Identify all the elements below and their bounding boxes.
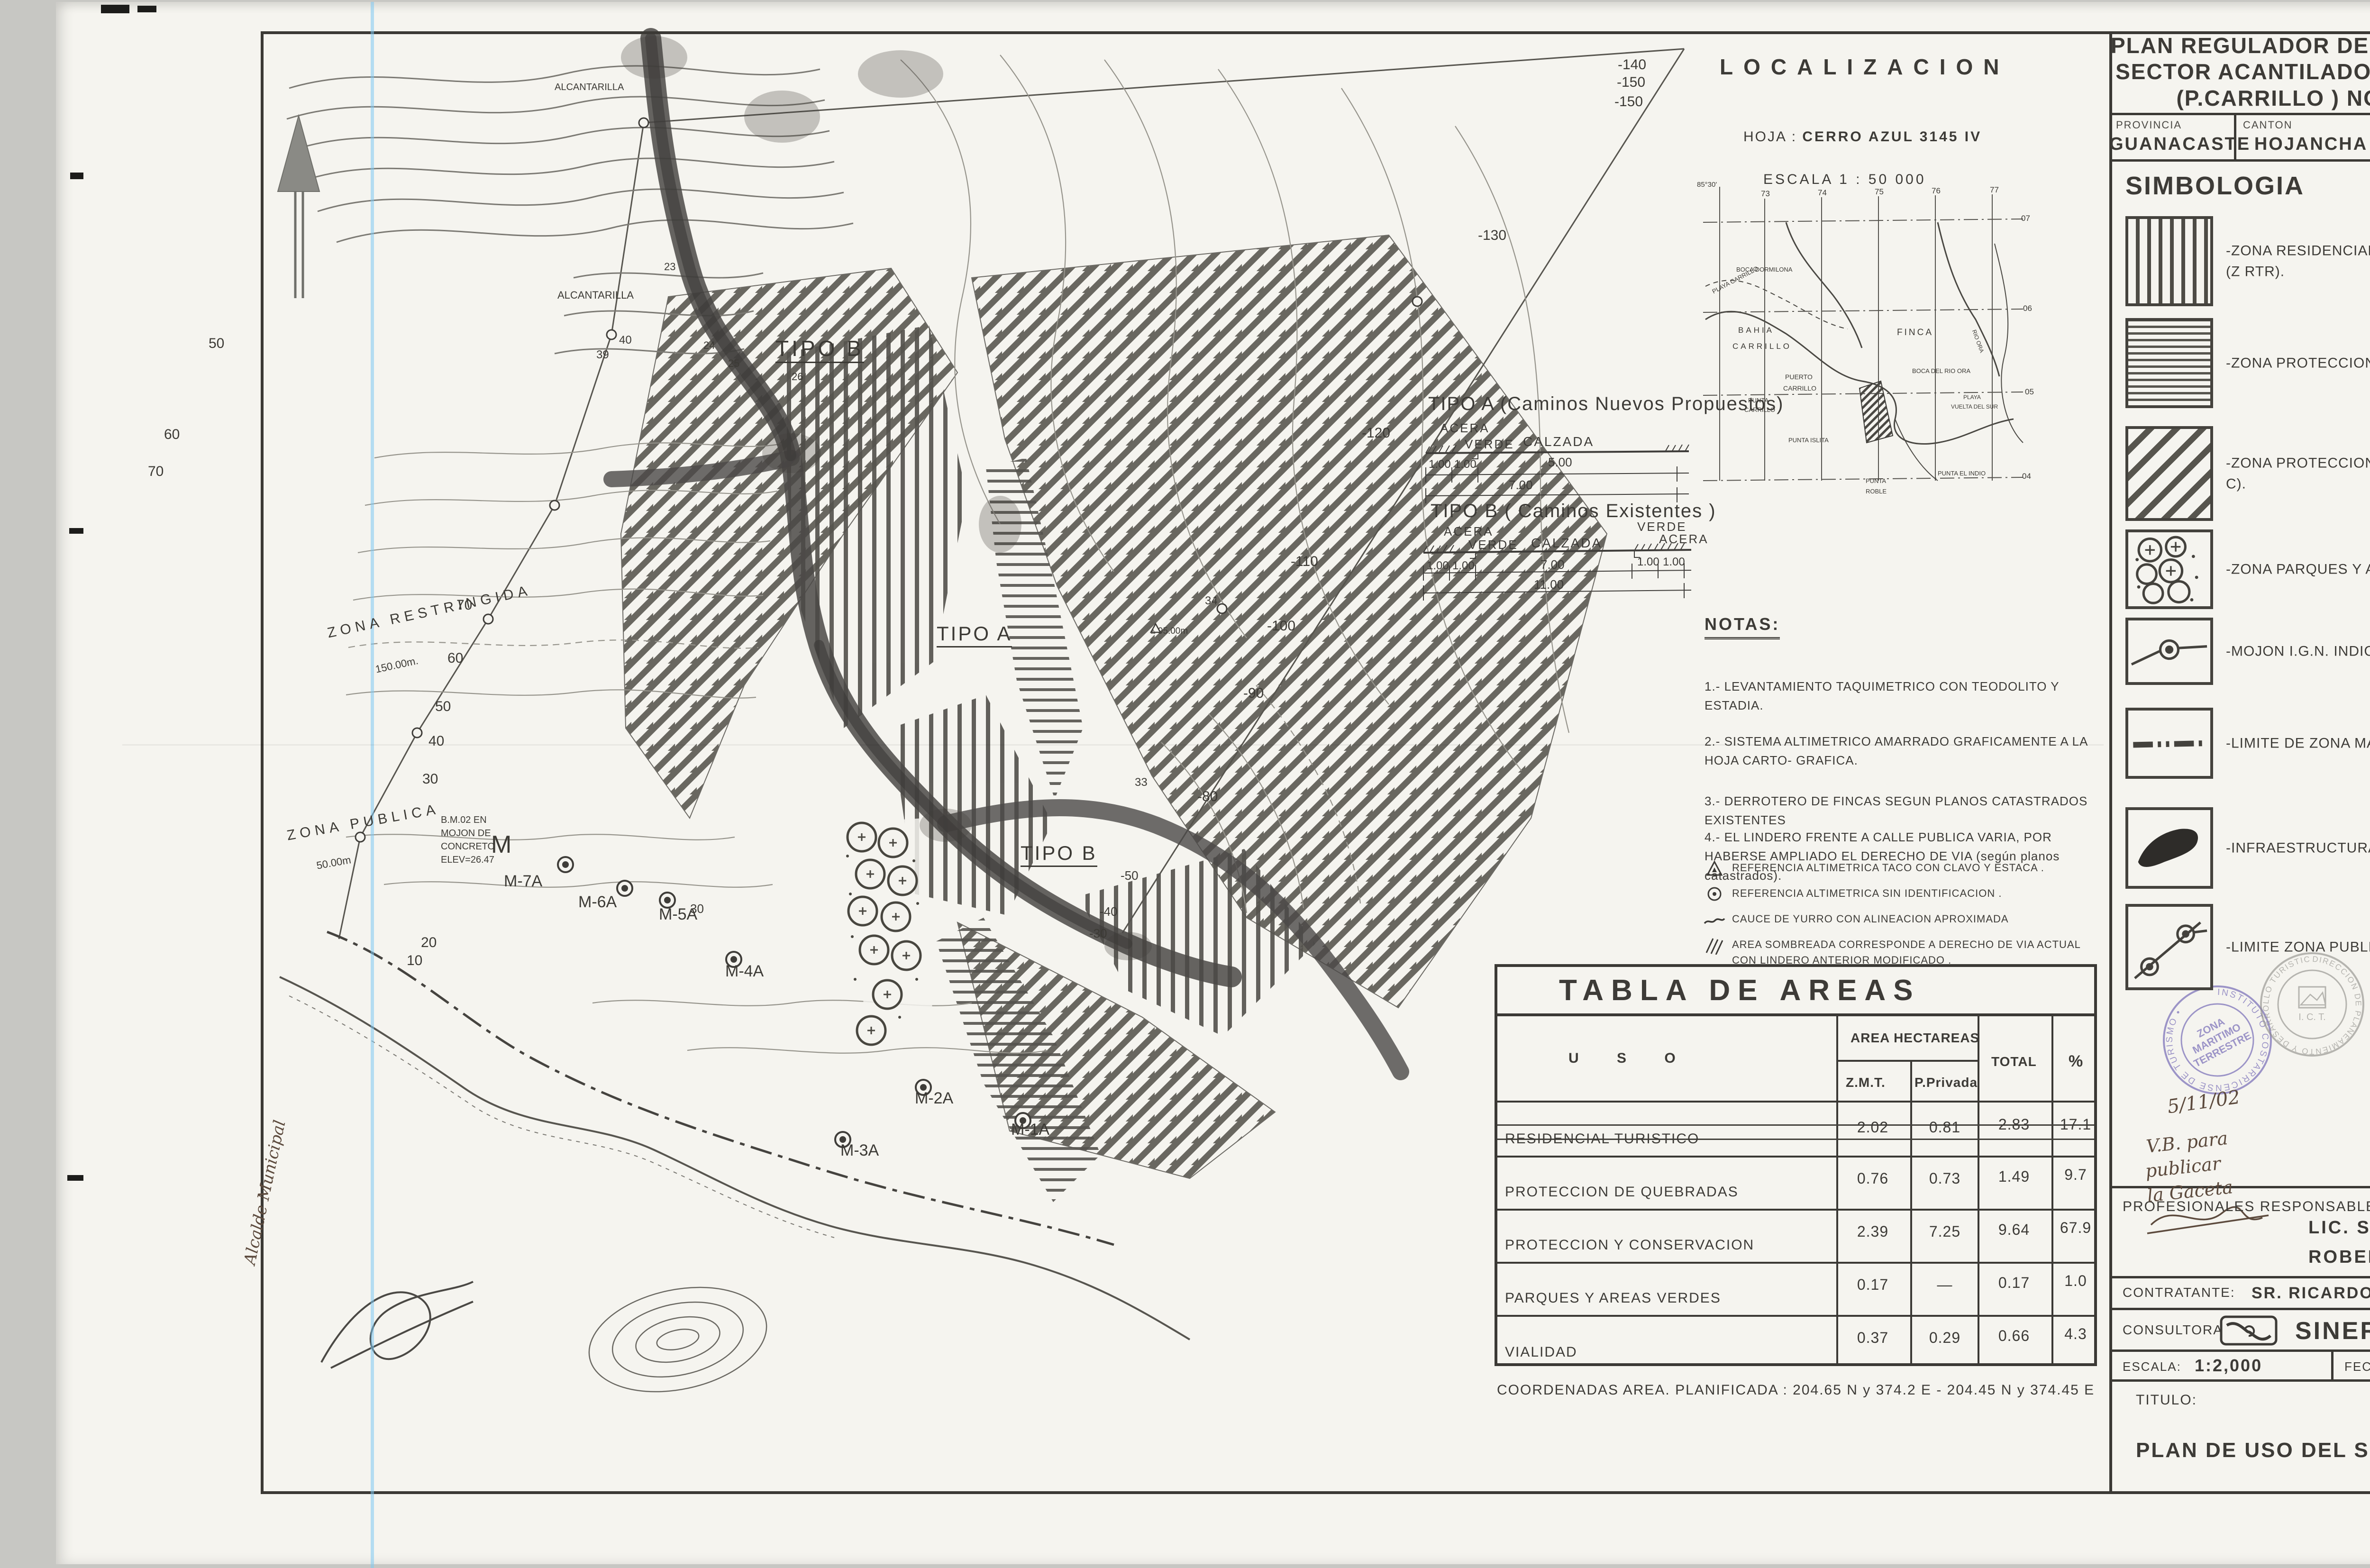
map-annotation: MOJON DE — [441, 829, 491, 838]
map-annotation: 07 — [2021, 214, 2030, 222]
map-annotation: 60 — [164, 428, 180, 442]
map-annotation: ALCANTARILLA — [555, 82, 624, 92]
sheet-paper: INSTITUTO COSTARRICENSE DE TURISMO • ZON… — [56, 2, 2370, 1564]
map-annotation: 05 — [2025, 388, 2034, 396]
map-annotation: 39 — [596, 349, 609, 361]
map-annotation: 04 — [2022, 472, 2031, 480]
map-annotation: -80 — [1197, 790, 1218, 804]
map-annotation: ▵ 95.00m — [1151, 627, 1188, 636]
map-annotation: PUNTA — [1866, 478, 1886, 484]
map-annotation: 33 — [1135, 777, 1148, 788]
map-annotation: 24 — [703, 340, 715, 351]
map-annotation: 75 — [1875, 188, 1884, 196]
map-annotation: ALCANTARILLA — [557, 290, 634, 301]
map-annotation: 30 — [690, 903, 704, 915]
map-annotation: 77 — [1990, 186, 1999, 194]
map-annotation: CARRILLO — [1744, 407, 1775, 413]
map-annotation: M-2A — [915, 1090, 953, 1106]
map-annotation: PUNTA ISLITA — [1788, 437, 1829, 443]
handwritten-note: 5/11/02 — [2166, 1088, 2241, 1117]
handwritten-note: la Gaceta — [2146, 1178, 2234, 1205]
map-annotation: PLAYA — [1963, 394, 1981, 400]
map-annotation: -30 — [1089, 927, 1107, 939]
map-annotation: B.M.02 EN — [441, 815, 487, 825]
map-annotation: -150 — [1617, 75, 1645, 90]
map-annotation: CARRILLO — [1783, 385, 1816, 392]
map-annotation: -120 — [1362, 426, 1390, 440]
map-annotation: -100 — [1267, 619, 1295, 633]
map-annotation: PUNTA EL INDIO — [1938, 470, 1986, 476]
map-annotation: 25 — [728, 358, 739, 369]
map-annotation: ELEV=26.47 — [441, 855, 494, 865]
map-annotation: -40 — [1100, 905, 1118, 918]
map-annotation: M-4A — [725, 963, 764, 979]
map-annotation: 10 — [407, 954, 422, 968]
map-annotation: M-3A — [840, 1142, 879, 1158]
map-annotations-layer: TIPO BTIPO ATIPO BALCANTARILLAALCANTARIL… — [56, 2, 2370, 1564]
map-annotation: BAHIA — [1738, 326, 1774, 334]
map-annotation: 40 — [619, 335, 632, 346]
map-annotation: 60 — [447, 651, 463, 665]
map-annotation: 06 — [2023, 304, 2032, 312]
map-annotation: 30 — [422, 772, 438, 786]
map-annotation: CONCRETO — [441, 842, 495, 851]
map-annotation: BOCA DEL RIO ORA — [1912, 368, 1970, 374]
map-annotation: VUELTA DEL SUR — [1951, 404, 1998, 410]
map-annotation: 26 — [792, 372, 803, 382]
map-annotation: TIPO A — [937, 624, 1012, 647]
map-annotation: PUNTA — [1748, 397, 1768, 403]
map-annotation: -130 — [1478, 228, 1506, 243]
map-annotation: M-6A — [578, 894, 617, 910]
map-annotation: 20 — [421, 936, 437, 950]
map-annotation: 50.00m — [316, 855, 352, 871]
map-annotation: -90 — [1243, 686, 1264, 701]
map-annotation: 34 — [1205, 595, 1218, 607]
map-annotation: -150 — [1614, 95, 1643, 109]
map-annotation: M — [491, 832, 511, 857]
map-annotation: 50 — [435, 700, 451, 714]
handwritten-note: Alcalde Municipal — [242, 1119, 288, 1266]
map-annotation: 85°30' — [1697, 181, 1717, 188]
map-annotation: 74 — [1818, 189, 1827, 197]
map-annotation: PLAYA CARRILLO — [1711, 265, 1759, 294]
map-annotation: FINCA — [1897, 328, 1933, 337]
map-annotation: 73 — [1761, 190, 1770, 198]
map-annotation: -140 — [1618, 58, 1646, 72]
map-annotation: M-7A — [504, 873, 542, 889]
map-annotation: 70 — [148, 465, 164, 479]
map-annotation: -50 — [1121, 869, 1139, 882]
map-annotation: PUERTO — [1785, 374, 1813, 380]
map-annotation: TIPO B — [1021, 843, 1097, 867]
map-annotation: -110 — [1291, 555, 1318, 569]
map-annotation: TIPO B — [775, 337, 864, 363]
map-annotation: 150.00m. — [374, 656, 419, 675]
handwritten-note: publicar — [2144, 1154, 2222, 1180]
map-annotation: 23 — [664, 262, 675, 272]
handwritten-note: V.B. para — [2145, 1129, 2229, 1156]
map-annotation: ZONA PUBLICA — [286, 802, 441, 843]
map-annotation: CARRILLO — [1732, 342, 1792, 350]
map-annotation: RIO ORA — [1971, 329, 1985, 354]
map-annotation: ZONA RESTRINGIDA — [326, 583, 533, 641]
map-annotation: 50 — [209, 337, 224, 351]
map-annotation: 40 — [428, 734, 444, 748]
map-annotation: M-1A — [1011, 1121, 1049, 1138]
map-annotation: 70 — [456, 598, 472, 612]
map-annotation: ROBLE — [1866, 488, 1887, 494]
map-annotation: 76 — [1932, 187, 1941, 195]
